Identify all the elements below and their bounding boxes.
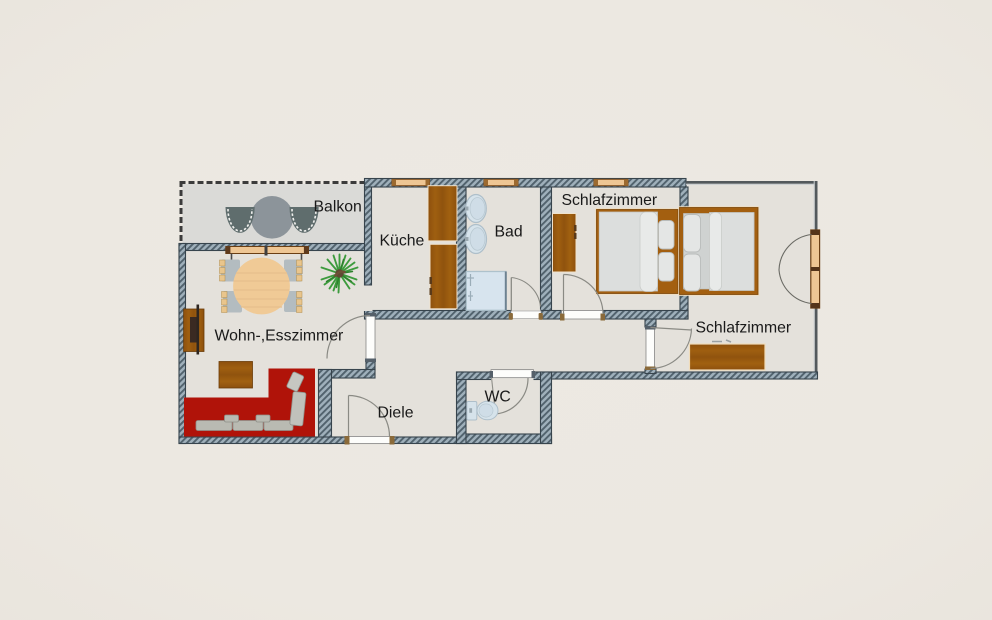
svg-text:Schlafzimmer: Schlafzimmer [562, 192, 658, 209]
svg-text:Bad: Bad [495, 224, 523, 241]
svg-text:Wohn-,Esszimmer: Wohn-,Esszimmer [215, 328, 344, 345]
svg-text:Küche: Küche [380, 233, 425, 250]
svg-text:Schlafzimmer: Schlafzimmer [696, 320, 792, 337]
svg-text:Diele: Diele [378, 405, 414, 422]
svg-text:Balkon: Balkon [314, 199, 362, 216]
svg-text:WC: WC [485, 389, 511, 406]
